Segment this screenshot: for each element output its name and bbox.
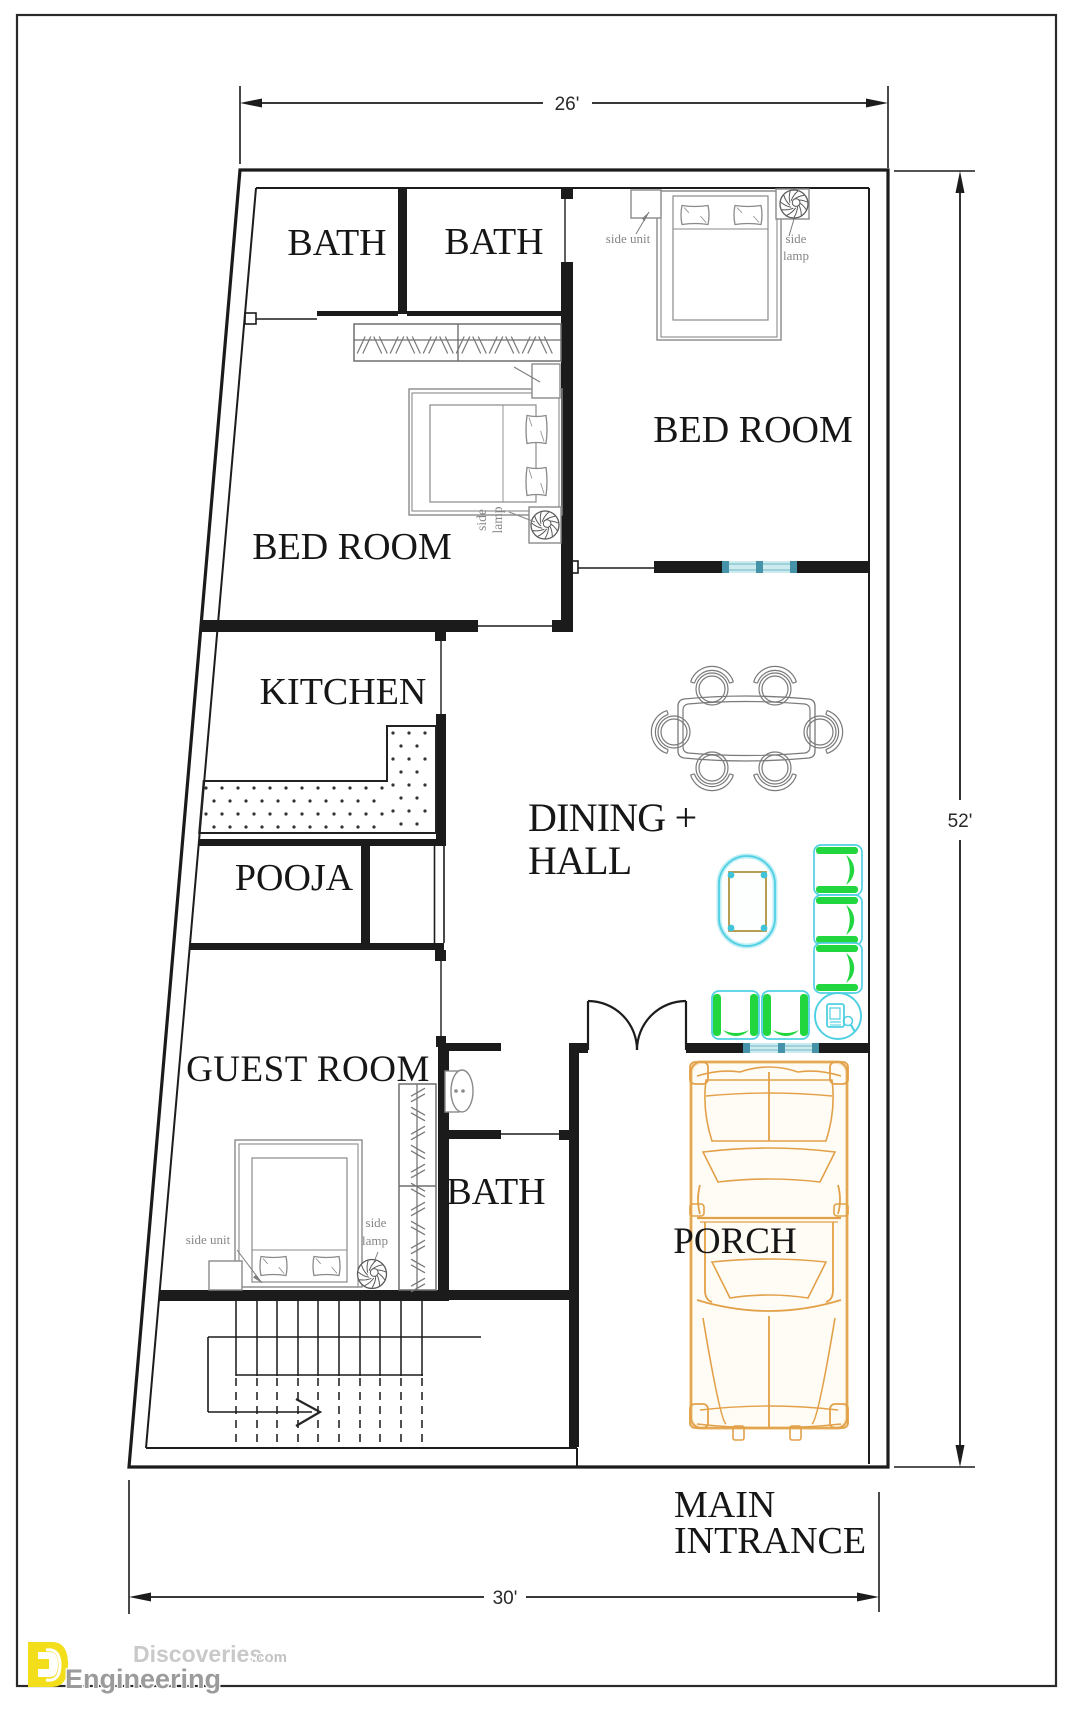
svg-text:BED ROOM: BED ROOM [653, 409, 853, 451]
svg-text:.com: .com [252, 1649, 287, 1666]
svg-text:side: side [366, 1215, 387, 1230]
svg-text:BATH: BATH [446, 1171, 545, 1213]
svg-text:26': 26' [555, 94, 580, 115]
svg-text:side: side [786, 231, 807, 246]
svg-text:30': 30' [493, 1588, 518, 1609]
svg-text:BATH: BATH [287, 222, 386, 264]
svg-text:lamp: lamp [783, 248, 809, 263]
svg-text:lamp: lamp [362, 1233, 388, 1248]
svg-text:BATH: BATH [444, 221, 543, 263]
svg-text:POOJA: POOJA [235, 857, 354, 899]
svg-text:PORCH: PORCH [673, 1221, 796, 1262]
svg-text:lamp: lamp [490, 506, 505, 533]
svg-text:side unit: side unit [186, 1232, 231, 1247]
svg-text:KITCHEN: KITCHEN [260, 671, 427, 713]
svg-text:BED ROOM: BED ROOM [252, 526, 452, 568]
svg-text:DINING +: DINING + [528, 795, 696, 840]
svg-text:Engineering: Engineering [65, 1664, 221, 1694]
svg-text:GUEST ROOM: GUEST ROOM [186, 1049, 430, 1090]
svg-text:side unit: side unit [606, 231, 651, 246]
svg-text:side: side [474, 509, 489, 531]
svg-text:52': 52' [948, 811, 973, 832]
svg-text:HALL: HALL [528, 838, 631, 883]
svg-text:INTRANCE: INTRANCE [674, 1520, 866, 1562]
